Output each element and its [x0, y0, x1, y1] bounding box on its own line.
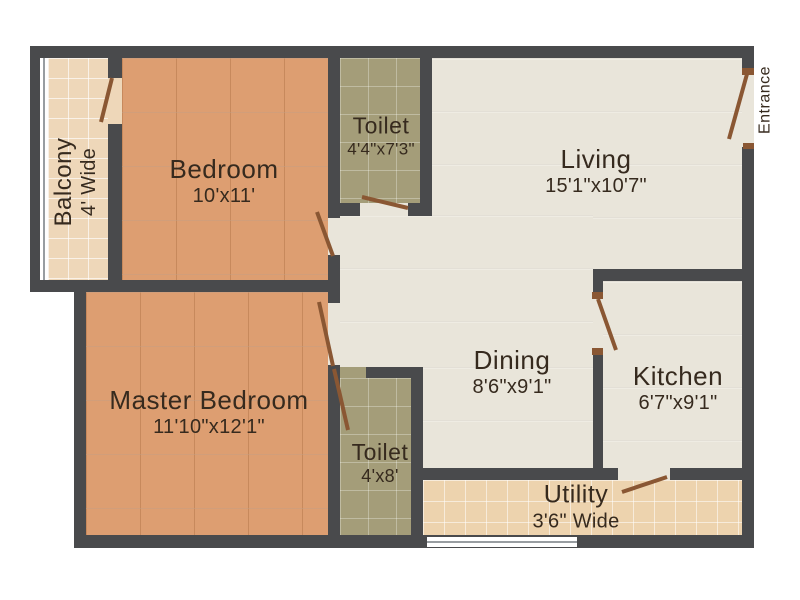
- utility-name: Utility: [533, 480, 620, 510]
- bedroom-door-opening: [328, 218, 340, 255]
- toilet-bottom-dims: 4'x8': [352, 466, 409, 487]
- entrance-door-jamb: [743, 143, 754, 149]
- floor-plan: Balcony 4' Wide Bedroom 10'x11' Toilet 4…: [0, 0, 800, 600]
- kitchen-label: Kitchen 6'7"x9'1": [633, 361, 723, 415]
- wall-outer-top: [30, 46, 754, 58]
- wall-bedroom-right: [328, 58, 340, 292]
- wall-utility-top: [411, 468, 742, 480]
- toilet-top-door-opening: [360, 203, 408, 216]
- wall-toilet-bottom-right: [411, 367, 423, 535]
- balcony-name: Balcony: [50, 138, 78, 227]
- utility-label: Utility 3'6" Wide: [533, 480, 620, 533]
- balcony-window: [40, 58, 48, 280]
- master-door-opening: [328, 303, 340, 365]
- dining-name: Dining: [472, 345, 551, 376]
- utility-door-opening: [618, 468, 670, 480]
- kitchen-door-jamb: [592, 348, 603, 355]
- kitchen-door-hinge: [592, 292, 603, 299]
- master-bedroom-label: Master Bedroom 11'10"x12'1": [109, 385, 308, 439]
- wall-outer-bottom: [74, 535, 754, 548]
- wall-master-left: [74, 280, 86, 548]
- bedroom-label: Bedroom 10'x11': [170, 154, 279, 208]
- toilet-bottom-door-opening: [340, 367, 366, 378]
- kitchen-dims: 6'7"x9'1": [633, 392, 723, 416]
- wall-kitchen-top: [593, 269, 742, 281]
- balcony-label: Balcony 4' Wide: [50, 138, 102, 227]
- dining-floor: [340, 215, 593, 368]
- entrance-label: Entrance: [757, 66, 776, 134]
- toilet-top-name: Toilet: [347, 112, 415, 139]
- dining-dims: 8'6"x9'1": [472, 376, 551, 400]
- toilet-top-label: Toilet 4'4"x7'3": [347, 112, 415, 159]
- utility-window: [427, 537, 577, 547]
- toilet-bottom-name: Toilet: [352, 439, 409, 466]
- entrance-door-opening: [742, 72, 754, 147]
- living-name: Living: [545, 144, 647, 175]
- wall-toilet-top-right: [420, 58, 432, 216]
- master-bedroom-name: Master Bedroom: [109, 385, 308, 416]
- wall-outer-left-balcony: [30, 46, 40, 288]
- entrance-text: Entrance: [757, 66, 776, 134]
- bedroom-name: Bedroom: [170, 154, 279, 185]
- toilet-bottom-label: Toilet 4'x8': [352, 439, 409, 487]
- balcony-dims: 4' Wide: [78, 138, 102, 227]
- dining-label: Dining 8'6"x9'1": [472, 345, 551, 399]
- living-dims: 15'1"x10'7": [545, 175, 647, 199]
- bedroom-dims: 10'x11': [170, 185, 279, 209]
- master-bedroom-dims: 11'10"x12'1": [109, 416, 308, 440]
- balcony-door-opening: [108, 78, 122, 124]
- balcony-window-pane: [43, 58, 45, 280]
- kitchen-door-opening: [593, 298, 603, 353]
- living-label: Living 15'1"x10'7": [545, 144, 647, 198]
- utility-window-pane: [427, 541, 577, 543]
- kitchen-name: Kitchen: [633, 361, 723, 392]
- entrance-door-hinge: [742, 68, 754, 75]
- toilet-top-dims: 4'4"x7'3": [347, 140, 415, 160]
- utility-dims: 3'6" Wide: [533, 510, 620, 534]
